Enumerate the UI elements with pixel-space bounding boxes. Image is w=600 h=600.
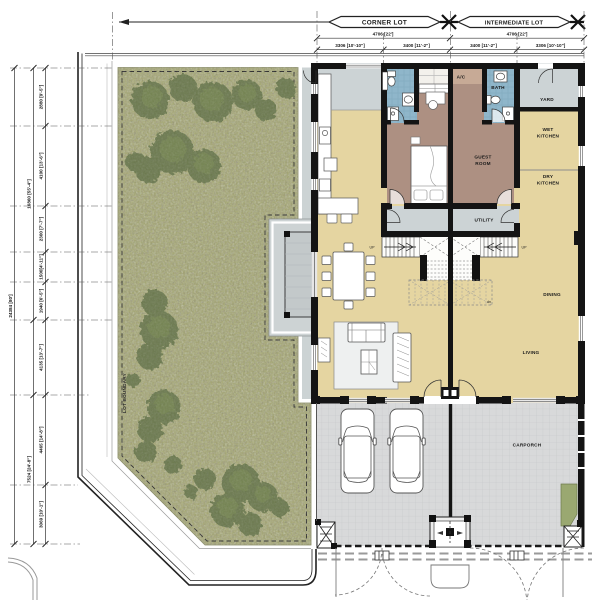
svg-text:2300 [7'-7"]: 2300 [7'-7"] — [39, 216, 44, 241]
svg-text:4465 [14'-8"]: 4465 [14'-8"] — [39, 426, 44, 453]
svg-text:YARD: YARD — [540, 97, 554, 102]
svg-text:UP: UP — [370, 246, 376, 250]
svg-text:ROOM: ROOM — [475, 161, 490, 166]
svg-text:1500[4'-11"]: 1500[4'-11"] — [39, 254, 44, 280]
svg-text:UP: UP — [522, 246, 528, 250]
svg-text:4100 [13'-6"]: 4100 [13'-6"] — [39, 152, 44, 179]
svg-text:A/C: A/C — [457, 75, 466, 80]
svg-text:16860 [55'-4"]: 16860 [55'-4"] — [27, 179, 32, 209]
svg-text:3306 [10'-10"]: 3306 [10'-10"] — [335, 43, 365, 48]
svg-text:INTERMEDIATE LOT: INTERMEDIATE LOT — [485, 21, 544, 27]
svg-text:3400 [11'-2"]: 3400 [11'-2"] — [470, 43, 497, 48]
svg-text:GUEST: GUEST — [474, 155, 491, 160]
svg-text:LIVING: LIVING — [523, 350, 540, 355]
svg-text:2880 [9'-5"]: 2880 [9'-5"] — [39, 84, 44, 109]
svg-text:4135 [13'-7"]: 4135 [13'-7"] — [39, 344, 44, 371]
svg-text:CORNER LOT: CORNER LOT — [362, 20, 407, 27]
svg-text:1940 [6'-5"]: 1940 [6'-5"] — [39, 288, 44, 313]
svg-text:WET: WET — [542, 127, 553, 132]
svg-text:3069 [10'-1"]: 3069 [10'-1"] — [39, 501, 44, 528]
svg-text:KITCHEN: KITCHEN — [537, 181, 560, 186]
svg-text:DINING: DINING — [543, 292, 561, 297]
svg-text:3306 [10'-10"]: 3306 [10'-10"] — [536, 43, 566, 48]
svg-text:KITCHEN: KITCHEN — [537, 134, 560, 139]
svg-text:DRY: DRY — [543, 174, 554, 179]
svg-text:BATH: BATH — [491, 85, 505, 90]
svg-text:dn: dn — [487, 300, 491, 304]
svg-text:7524 [24'-8"]: 7524 [24'-8"] — [27, 456, 32, 483]
svg-text:UTILITY: UTILITY — [474, 218, 494, 223]
svg-text:24384 [80']: 24384 [80'] — [8, 294, 13, 318]
svg-text:3400 [11'-2"]: 3400 [11'-2"] — [403, 43, 430, 48]
svg-text:CARPORCH: CARPORCH — [513, 443, 542, 448]
